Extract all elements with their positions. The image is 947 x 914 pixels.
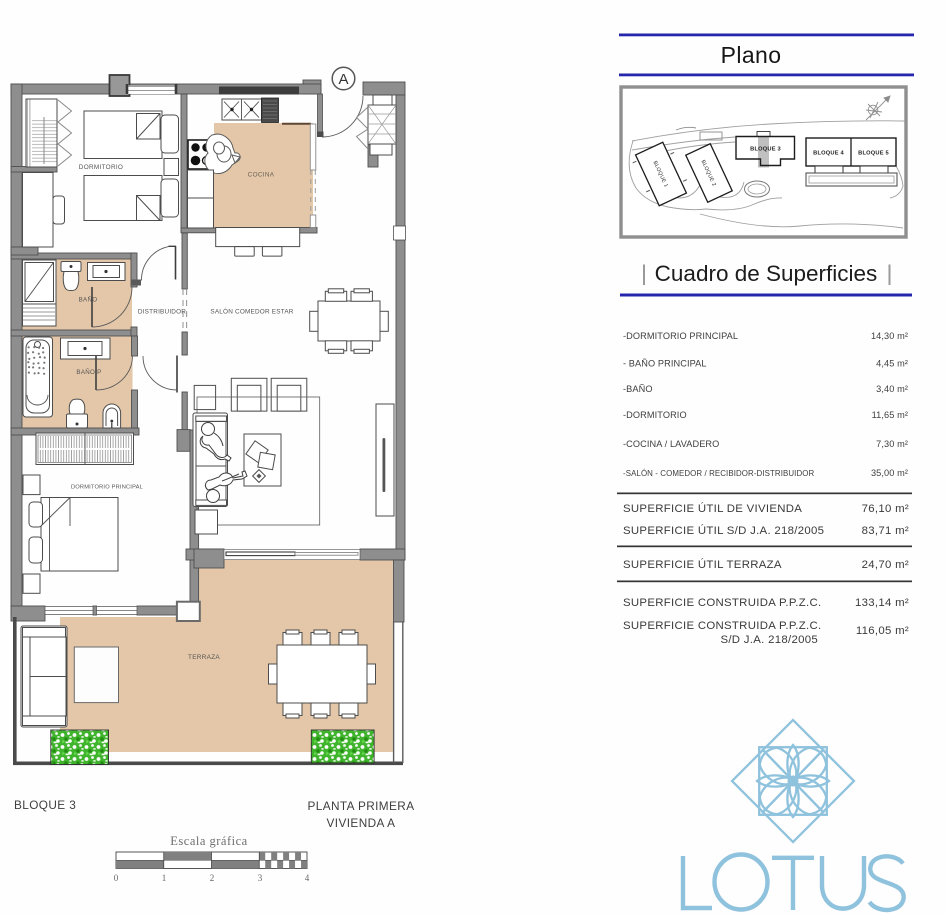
svg-text:-DORMITORIO PRINCIPAL: -DORMITORIO PRINCIPAL: [623, 331, 738, 341]
svg-text:SUPERFICIE CONSTRUIDA P.P.Z.C.: SUPERFICIE CONSTRUIDA P.P.Z.C.: [623, 620, 821, 632]
svg-text:BLOQUE 5: BLOQUE 5: [858, 151, 889, 157]
svg-text:DISTRIBUIDOR: DISTRIBUIDOR: [138, 309, 186, 316]
svg-text:76,10 m²: 76,10 m²: [862, 503, 909, 515]
svg-text:3: 3: [258, 873, 263, 883]
svg-text:24,70 m²: 24,70 m²: [862, 559, 909, 571]
svg-text:SUPERFICIE ÚTIL TERRAZA: SUPERFICIE ÚTIL TERRAZA: [623, 558, 782, 571]
svg-text:TERRAZA: TERRAZA: [188, 654, 220, 661]
svg-text:SUPERFICIE ÚTIL DE VIVIENDA: SUPERFICIE ÚTIL DE VIVIENDA: [623, 502, 802, 515]
svg-text:S/D J.A. 218/2005: S/D J.A. 218/2005: [720, 634, 818, 646]
svg-text:83,71 m²: 83,71 m²: [862, 525, 909, 537]
svg-text:A: A: [338, 71, 348, 88]
svg-text:1: 1: [162, 873, 167, 883]
svg-text:11,65 m²: 11,65 m²: [872, 410, 908, 420]
svg-text:DORMITORIO: DORMITORIO: [79, 164, 123, 171]
svg-text:14,30 m²: 14,30 m²: [871, 331, 908, 341]
svg-text:4,45 m²: 4,45 m²: [876, 359, 908, 369]
svg-text:SUPERFICIE ÚTIL S/D J.A. 218/2: SUPERFICIE ÚTIL S/D J.A. 218/2005: [623, 524, 824, 537]
svg-text:BLOQUE 3: BLOQUE 3: [750, 147, 781, 153]
svg-text:7,30 m²: 7,30 m²: [876, 439, 908, 449]
svg-text:Cuadro de Superficies: Cuadro de Superficies: [655, 261, 878, 286]
svg-text:-COCINA / LAVADERO: -COCINA / LAVADERO: [623, 439, 719, 449]
svg-text:- BAÑO PRINCIPAL: - BAÑO PRINCIPAL: [623, 359, 707, 369]
svg-text:VIVIENDA A: VIVIENDA A: [327, 816, 396, 830]
svg-text:Escala gráfica: Escala gráfica: [170, 834, 247, 848]
svg-text:2: 2: [210, 873, 215, 883]
svg-text:COCINA: COCINA: [248, 172, 275, 179]
svg-text:3,40 m²: 3,40 m²: [876, 384, 908, 394]
svg-text:4: 4: [305, 873, 310, 883]
svg-text:BAÑO P: BAÑO P: [76, 369, 101, 376]
svg-text:-SALÓN - COMEDOR / RECIBIDOR-: -SALÓN - COMEDOR / RECIBIDOR-DISTRIBUIDO…: [623, 469, 814, 478]
svg-text:116,05 m²: 116,05 m²: [856, 625, 909, 637]
svg-text:BLOQUE 4: BLOQUE 4: [813, 151, 844, 157]
svg-text:BLOQUE 3: BLOQUE 3: [14, 798, 76, 812]
svg-text:SUPERFICIE CONSTRUIDA P.P.Z.C.: SUPERFICIE CONSTRUIDA P.P.Z.C.: [623, 597, 821, 609]
svg-text:0: 0: [114, 873, 119, 883]
svg-text:Plano: Plano: [721, 42, 782, 68]
svg-text:SALÓN COMEDOR ESTAR: SALÓN COMEDOR ESTAR: [210, 307, 293, 316]
svg-text:PLANTA PRIMERA: PLANTA PRIMERA: [308, 799, 415, 813]
svg-text:133,14 m²: 133,14 m²: [855, 597, 909, 609]
svg-text:-DORMITORIO: -DORMITORIO: [623, 410, 687, 420]
svg-text:DORMITORIO PRINCIPAL: DORMITORIO PRINCIPAL: [71, 485, 143, 491]
svg-text:35,00 m²: 35,00 m²: [871, 468, 908, 478]
svg-text:-BAÑO: -BAÑO: [623, 384, 653, 394]
svg-text:BAÑO: BAÑO: [79, 297, 98, 304]
